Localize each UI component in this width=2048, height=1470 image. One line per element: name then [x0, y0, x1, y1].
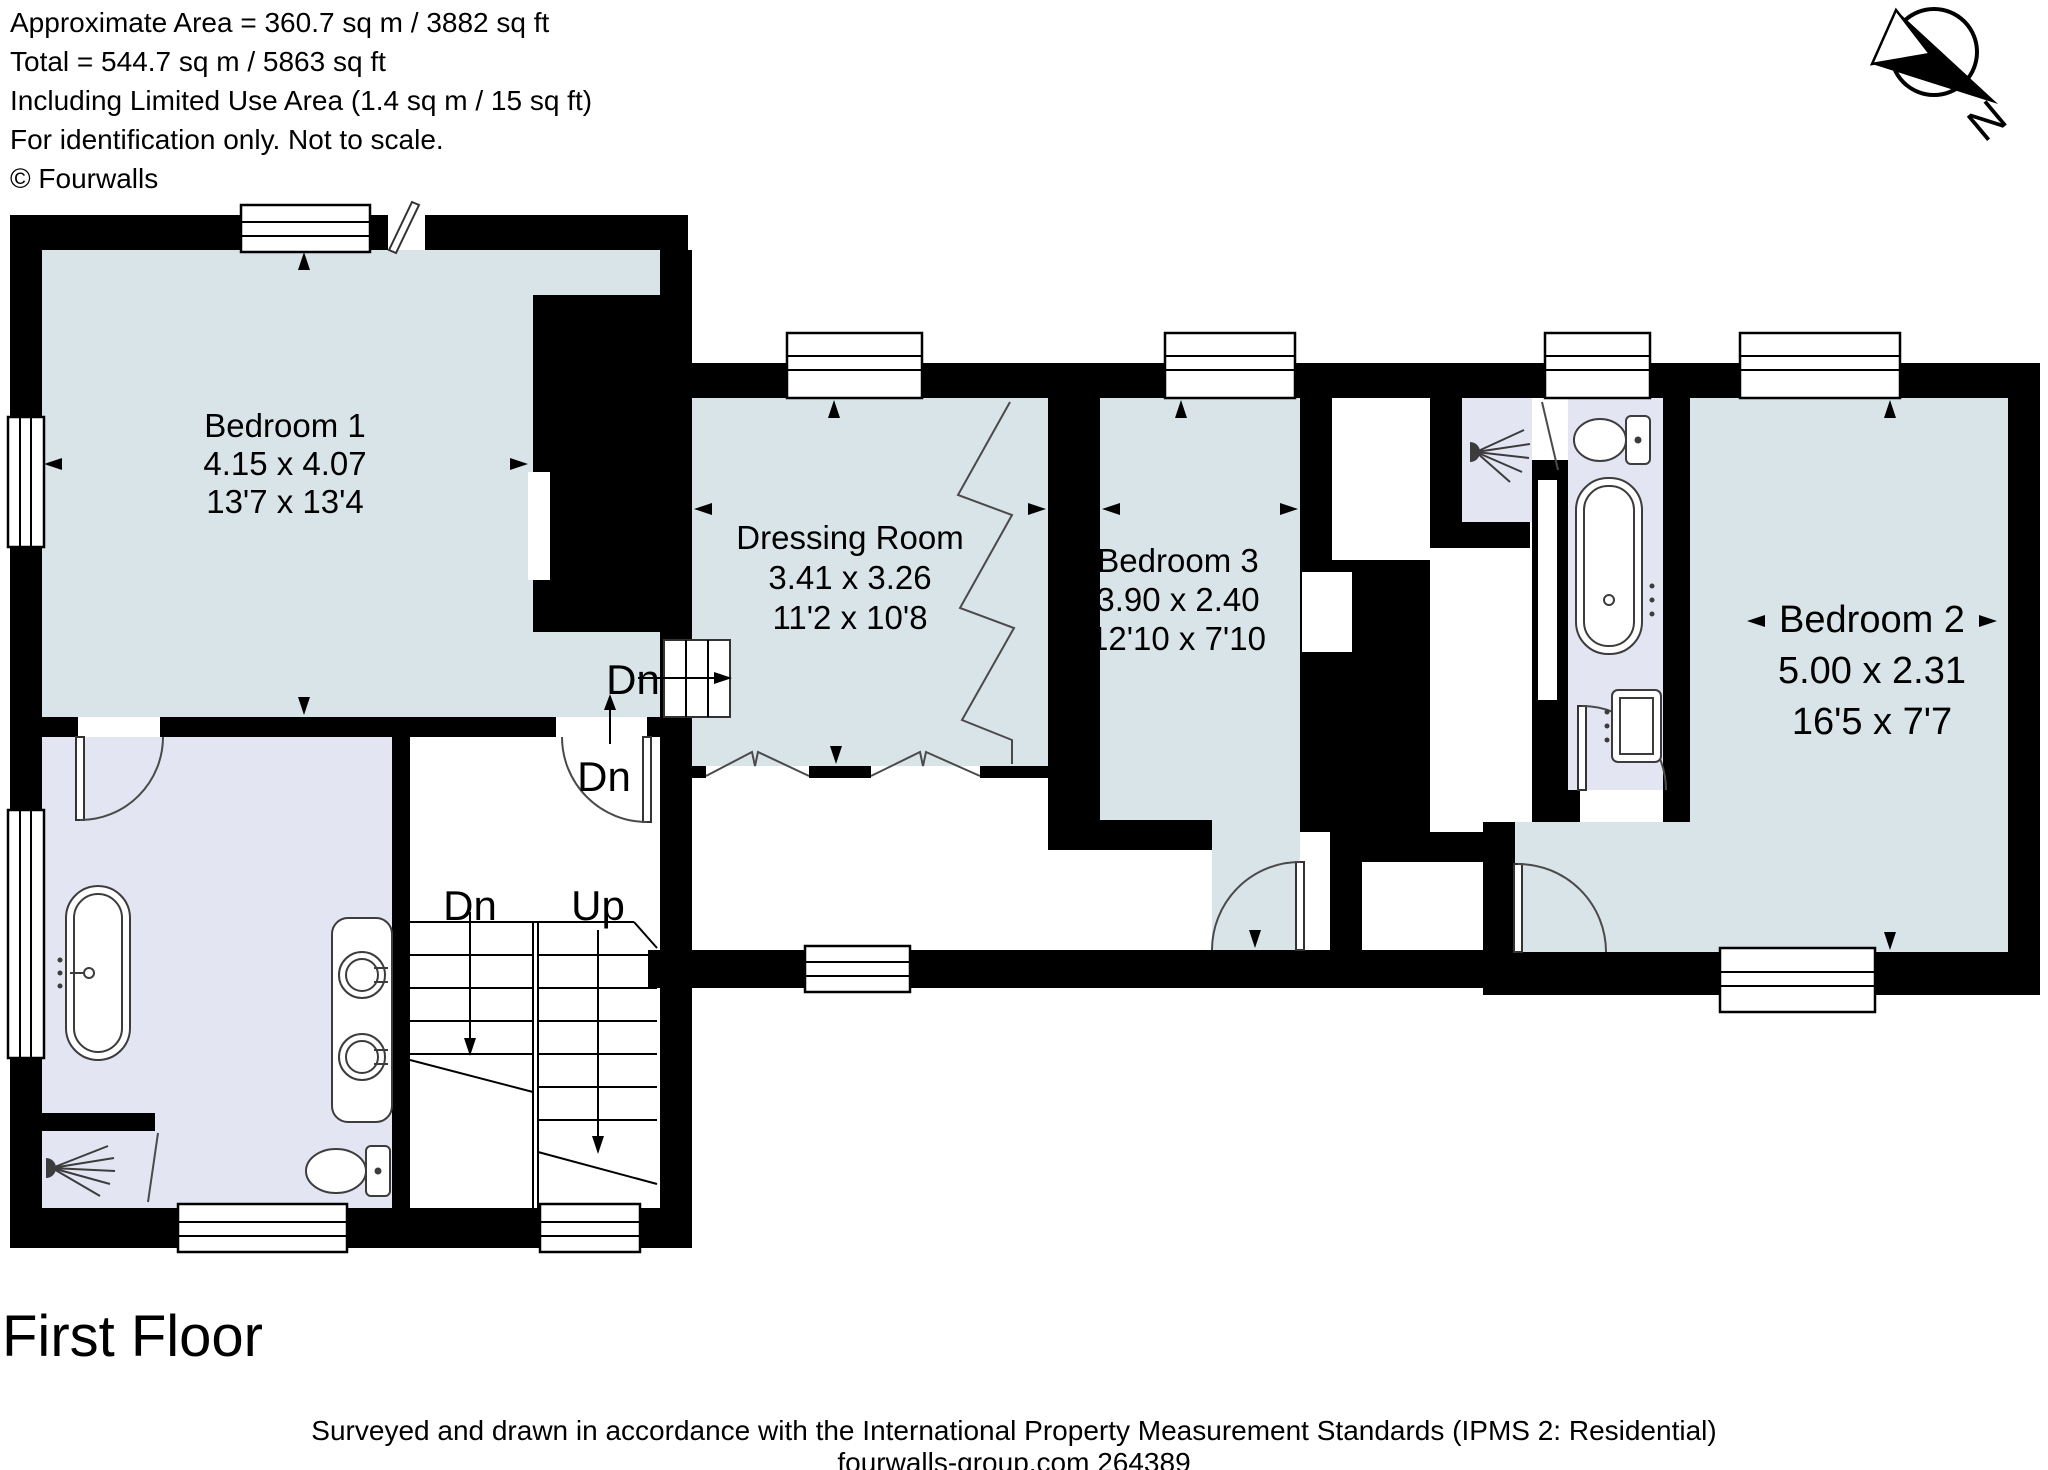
stair-door-dn-label: Dn — [577, 753, 631, 800]
bedroom-2-imperial: 16'5 x 7'7 — [1792, 701, 1952, 743]
door-bedroom1-top — [389, 202, 419, 253]
bedroom-2-label: Bedroom 2 5.00 x 2.31 16'5 x 7'7 — [1778, 599, 1966, 743]
corridor-floor-3 — [1362, 862, 1483, 950]
limited-use-text: Including Limited Use Area (1.4 sq m / 1… — [10, 85, 592, 116]
window-bathroom1-left — [8, 810, 44, 1058]
stair-hall-floor — [410, 737, 660, 1208]
compass-north-label: N — [1957, 90, 2016, 151]
window-bedroom1-left — [8, 417, 44, 547]
bedroom-1-name: Bedroom 1 — [204, 407, 365, 444]
shower-2-door — [1542, 402, 1558, 470]
bedroom-1-label: Bedroom 1 4.15 x 4.07 13'7 x 13'4 — [203, 407, 366, 520]
window-corridor-bottom — [805, 946, 910, 992]
floorplan-drawing: Approximate Area = 360.7 sq m / 3882 sq … — [0, 0, 2048, 1470]
window-bathroom2-top — [1545, 333, 1650, 398]
window-bedroom1-top — [241, 205, 370, 252]
floor-title: First Floor — [2, 1304, 263, 1369]
bedroom-3-metric: 3.90 x 2.40 — [1096, 581, 1259, 618]
disclaimer-text: For identification only. Not to scale. — [10, 124, 444, 155]
approx-area-text: Approximate Area = 360.7 sq m / 3882 sq … — [10, 7, 550, 38]
dressing-room-metric: 3.41 x 3.26 — [768, 559, 931, 596]
window-bedroom2-bottom — [1720, 948, 1875, 1012]
bedroom-3-label: Bedroom 3 3.90 x 2.40 12'10 x 7'10 — [1090, 542, 1266, 657]
corridor-floor-2 — [1048, 850, 1212, 950]
stair-flight-up-label: Up — [571, 882, 625, 929]
corridor-floor — [692, 776, 1048, 950]
bedroom-2-name: Bedroom 2 — [1779, 599, 1965, 641]
window-stairhall-bottom — [540, 1204, 640, 1252]
bedroom-1-imperial: 13'7 x 13'4 — [206, 483, 364, 520]
stair-flight-dn-label: Dn — [443, 882, 497, 929]
window-bedroom2-top — [1740, 333, 1900, 398]
toilet-icon — [306, 1146, 390, 1196]
window-bathroom1-bottom — [178, 1204, 347, 1252]
dressing-room-imperial: 11'2 x 10'8 — [772, 599, 927, 636]
window-dressing-top — [787, 333, 922, 398]
copyright-text: © Fourwalls — [10, 163, 158, 194]
bedroom-1-metric: 4.15 x 4.07 — [203, 445, 366, 482]
bedroom-3-name: Bedroom 3 — [1097, 542, 1258, 579]
dressing-room-name: Dressing Room — [736, 519, 963, 556]
double-vanity-icon — [332, 918, 392, 1122]
bathtub-icon — [58, 886, 131, 1060]
landing-dn-label: Dn — [606, 656, 660, 703]
bedroom-2-metric: 5.00 x 2.31 — [1778, 650, 1966, 692]
compass-icon: N — [1872, 9, 2016, 151]
total-area-text: Total = 544.7 sq m / 5863 sq ft — [10, 46, 386, 77]
footer-standards-text: Surveyed and drawn in accordance with th… — [311, 1415, 1716, 1446]
toilet-2-icon — [1574, 416, 1650, 464]
vanity-2-icon — [1605, 690, 1662, 762]
bedroom-2-lobby-floor — [1515, 822, 1690, 952]
window-bedroom3-top — [1165, 333, 1295, 398]
bedroom-3-imperial: 12'10 x 7'10 — [1090, 620, 1266, 657]
floorplan-page: Approximate Area = 360.7 sq m / 3882 sq … — [0, 0, 2048, 1470]
header-notes: Approximate Area = 360.7 sq m / 3882 sq … — [10, 7, 592, 194]
footer-website-text: fourwalls-group.com 264389 — [837, 1447, 1190, 1470]
